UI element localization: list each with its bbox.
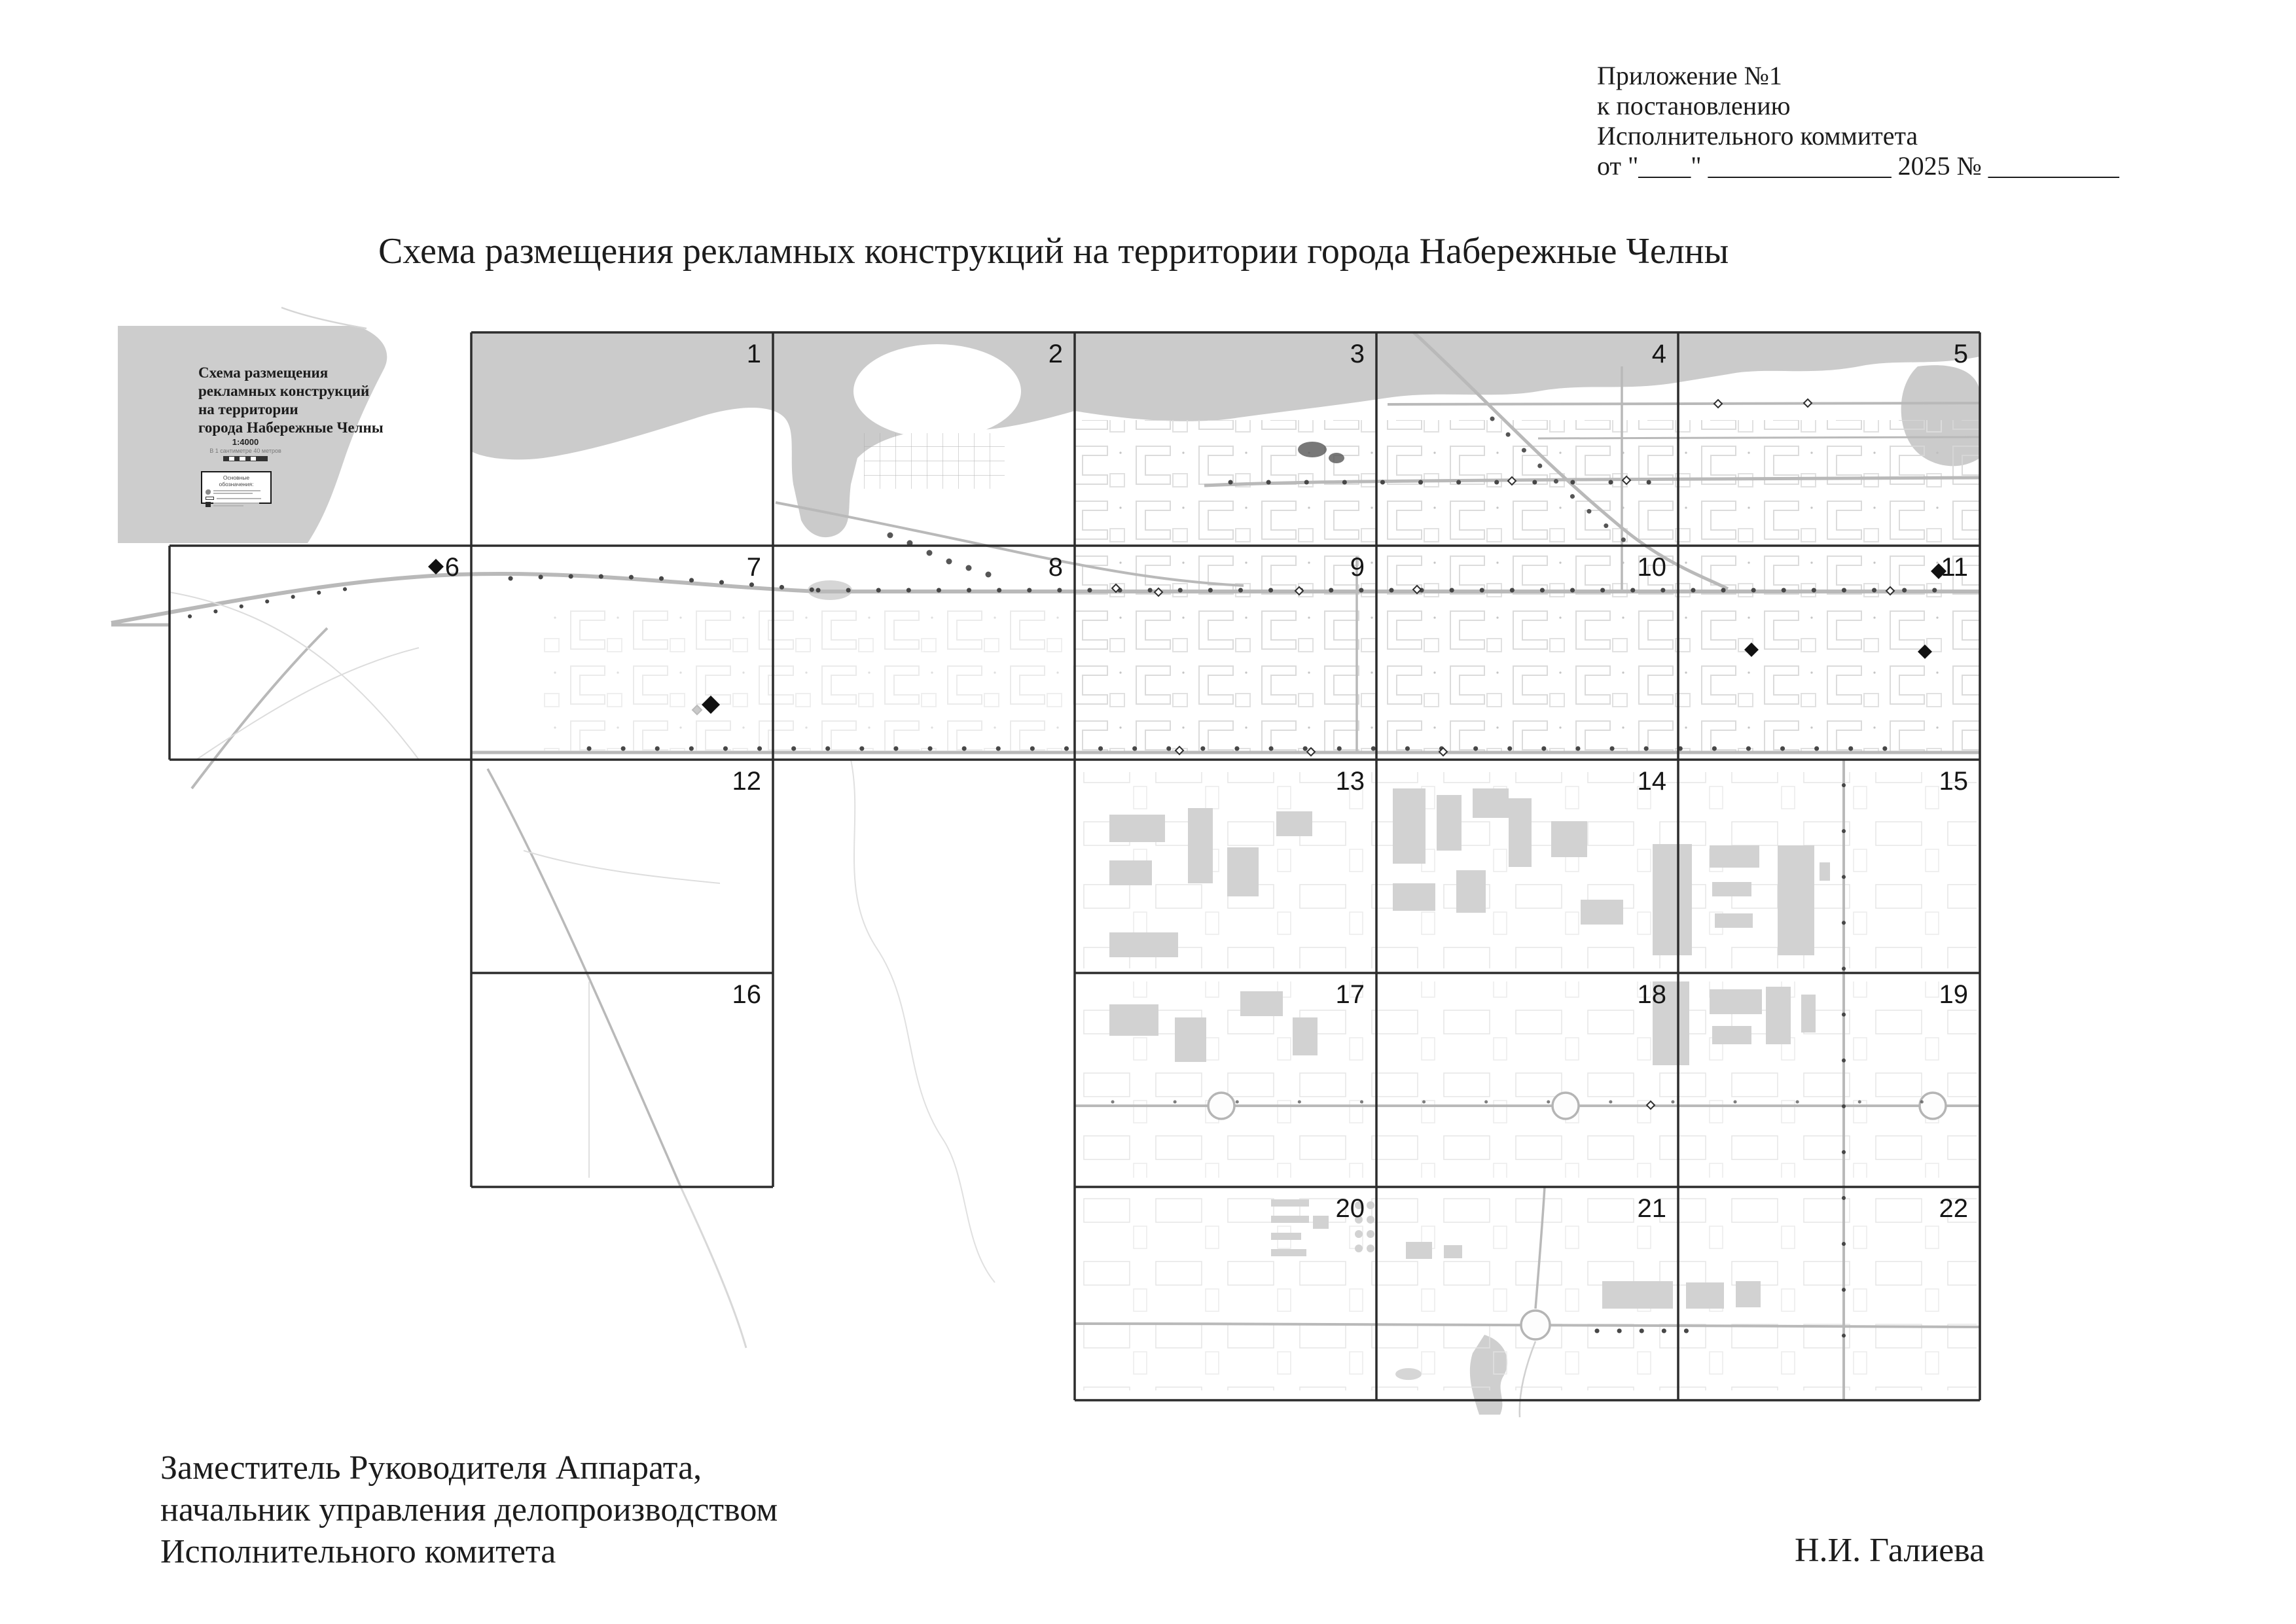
grid-cell-label-14: 14 bbox=[1588, 768, 1666, 795]
map-scale: 1:4000 В 1 сантиметре 40 метров bbox=[196, 437, 295, 461]
scale-value: 1:4000 bbox=[196, 437, 295, 447]
map-legend-title-line: Схема размещения bbox=[198, 364, 384, 382]
signature-line: Исполнительного комитета bbox=[160, 1531, 778, 1573]
appendix-header-line: к постановлению bbox=[1597, 91, 2119, 121]
map-legend-title-line: рекламных конструкций bbox=[198, 382, 384, 400]
blob-marker-icon bbox=[206, 489, 211, 495]
grid-cell-label-1: 1 bbox=[683, 340, 761, 368]
grid-cell-label-9: 9 bbox=[1286, 554, 1365, 581]
legend-item bbox=[206, 497, 267, 500]
grid-cell-label-2: 2 bbox=[984, 340, 1063, 368]
grid-cell-label-11: 11 bbox=[1890, 554, 1968, 581]
legend-item-text-placeholder bbox=[217, 498, 267, 499]
appendix-header-line: Приложение №1 bbox=[1597, 61, 2119, 91]
grid-cell-label-12: 12 bbox=[683, 768, 761, 795]
signature-line: Заместитель Руководителя Аппарата, bbox=[160, 1447, 778, 1489]
scale-bar bbox=[223, 456, 268, 461]
legend-item bbox=[206, 489, 267, 495]
grid-cell-label-8: 8 bbox=[984, 554, 1063, 581]
signatory-name: Н.И. Галиева bbox=[1795, 1531, 1984, 1570]
scale-note: В 1 сантиметре 40 метров bbox=[196, 448, 295, 454]
grid-cell-label-17: 17 bbox=[1286, 981, 1365, 1008]
legend-item-text-placeholder bbox=[213, 503, 267, 506]
grid-cell-label-22: 22 bbox=[1890, 1195, 1968, 1222]
map-legend-title-line: на территории bbox=[198, 400, 384, 419]
filled-square-marker-icon bbox=[206, 502, 211, 507]
grid-cell-label-20: 20 bbox=[1286, 1195, 1365, 1222]
grid-cell-label-3: 3 bbox=[1286, 340, 1365, 368]
grid-cell-label-7: 7 bbox=[683, 554, 761, 581]
appendix-header-date-line: от "____" ______________ 2025 № ________… bbox=[1597, 151, 2119, 181]
appendix-header: Приложение №1 к постановлению Исполнител… bbox=[1597, 61, 2119, 181]
legend-item-text-placeholder bbox=[213, 490, 267, 494]
grid-cell-label-18: 18 bbox=[1588, 981, 1666, 1008]
open-rect-marker-icon bbox=[206, 497, 214, 500]
grid-cell-label-13: 13 bbox=[1286, 768, 1365, 795]
grid-cell-label-4: 4 bbox=[1588, 340, 1666, 368]
grid-cell-label-21: 21 bbox=[1588, 1195, 1666, 1222]
grid-cell-label-15: 15 bbox=[1890, 768, 1968, 795]
grid-cell-label-6: 6 bbox=[381, 554, 459, 581]
grid-cell-label-5: 5 bbox=[1890, 340, 1968, 368]
legend-item bbox=[206, 502, 267, 507]
map-symbols-box: Основные обозначения: bbox=[201, 471, 272, 504]
signature-line: начальник управления делопроизводством bbox=[160, 1489, 778, 1531]
grid-cell-label-19: 19 bbox=[1890, 981, 1968, 1008]
page-title: Схема размещения рекламных конструкций н… bbox=[378, 230, 1729, 272]
grid-cell-label-10: 10 bbox=[1588, 554, 1666, 581]
grid-cell-label-16: 16 bbox=[683, 981, 761, 1008]
map-legend-title-line: города Набережные Челны bbox=[198, 419, 384, 437]
document-page: Приложение №1 к постановлению Исполнител… bbox=[0, 0, 2296, 1624]
map-symbols-title: Основные обозначения: bbox=[206, 474, 267, 487]
signature-block: Заместитель Руководителя Аппарата, начал… bbox=[160, 1447, 778, 1573]
map-legend-title: Схема размещения рекламных конструкций н… bbox=[198, 364, 384, 437]
appendix-header-line: Исполнительного коммитета bbox=[1597, 121, 2119, 151]
